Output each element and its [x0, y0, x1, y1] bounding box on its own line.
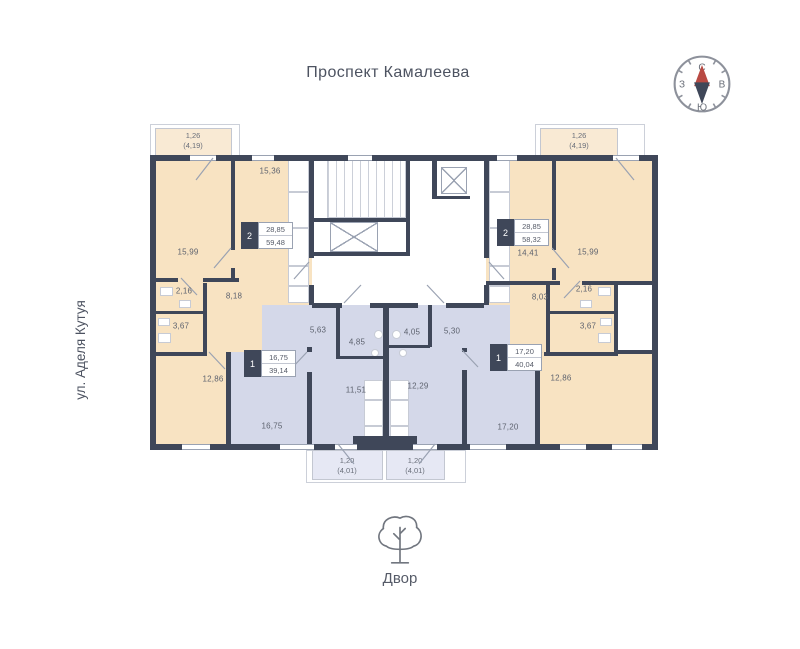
room-area-label: 12,86	[202, 375, 223, 384]
room-area-label: 12,29	[407, 382, 428, 391]
region-shaft-notch	[618, 284, 654, 350]
room-area-label: 16,75	[261, 422, 282, 431]
window	[335, 444, 357, 450]
elevator-shaft	[330, 222, 378, 252]
wall	[484, 285, 489, 305]
wall	[484, 155, 489, 258]
wall	[462, 370, 467, 444]
fixture	[288, 160, 309, 192]
fixture	[489, 160, 510, 192]
apartment-areas: 28,8558,32	[514, 219, 549, 246]
fixture	[489, 286, 510, 303]
apartment-areas: 17,2040,04	[507, 344, 542, 371]
room-area-label: 5,30	[444, 327, 460, 336]
fixture	[179, 300, 191, 308]
window	[280, 444, 314, 450]
apartment-areas: 28,8559,48	[258, 222, 293, 249]
wall	[150, 352, 207, 356]
room-area-label: 11,51	[346, 386, 366, 395]
apartment-rooms-count: 1	[490, 344, 507, 371]
apartment-rooms-count: 2	[241, 222, 258, 249]
wall	[428, 305, 432, 347]
wall	[309, 155, 314, 258]
apartment-rooms-count: 2	[497, 219, 514, 246]
region-apartment-2-left-bottom	[150, 352, 228, 444]
window	[470, 444, 506, 450]
wall	[544, 352, 618, 356]
room-area-label: 15,36	[259, 167, 280, 176]
balcony-area-label: 1,26(4,19)	[569, 131, 589, 151]
wall	[336, 305, 340, 357]
apartment-areas: 16,7539,14	[261, 350, 296, 377]
wall	[312, 252, 410, 256]
balcony-area-label: 1,26(4,19)	[183, 131, 203, 151]
fixture	[288, 266, 309, 286]
elevator-shaft	[441, 167, 467, 194]
room-area-label: 3,67	[580, 322, 596, 331]
wall	[307, 372, 312, 444]
wall	[652, 155, 658, 450]
apartment-badge[interactable]: 228,8558,32	[497, 219, 549, 246]
fixture	[158, 333, 171, 343]
wall	[312, 218, 410, 222]
room-area-label: 12,86	[550, 374, 571, 383]
room-area-label: 4,85	[349, 338, 365, 347]
tree-icon	[374, 514, 426, 568]
balcony-area-label: 1,20(4,01)	[405, 456, 425, 476]
apartment-badge[interactable]: 117,2040,04	[490, 344, 542, 371]
fixture	[364, 380, 383, 400]
window	[182, 444, 210, 450]
room-area-label: 8,18	[226, 292, 242, 301]
room-area-label: 15,99	[177, 248, 198, 257]
wall	[383, 305, 389, 444]
fixture	[390, 400, 409, 426]
room-area-label: 5,63	[310, 326, 326, 335]
courtyard-label: Двор	[340, 570, 460, 587]
wall	[203, 283, 207, 353]
window	[413, 444, 437, 450]
window	[612, 444, 642, 450]
wall	[150, 155, 156, 450]
wall	[370, 303, 418, 308]
fixture	[374, 330, 383, 339]
wall	[552, 268, 556, 280]
window	[560, 444, 586, 450]
wall	[150, 155, 658, 161]
window	[190, 155, 216, 161]
room-area-label: 14,41	[517, 249, 538, 258]
fixture	[390, 380, 409, 400]
wall	[231, 155, 235, 250]
wall	[353, 436, 417, 446]
window	[497, 155, 517, 161]
fixture	[580, 300, 592, 308]
apartment-badge[interactable]: 116,7539,14	[244, 350, 296, 377]
room-area-label: 2,16	[576, 285, 592, 294]
wall	[203, 278, 239, 282]
wall	[150, 278, 178, 282]
wall	[552, 155, 556, 250]
fixture	[399, 349, 407, 357]
fixture	[364, 400, 383, 426]
window	[252, 155, 274, 161]
wall	[462, 348, 467, 352]
wall	[546, 311, 618, 314]
wall	[226, 352, 231, 444]
wall	[614, 283, 618, 353]
apartment-badge[interactable]: 228,8559,48	[241, 222, 293, 249]
apartment-rooms-count: 1	[244, 350, 261, 377]
room-area-label: 2,16	[176, 287, 192, 296]
wall	[150, 311, 207, 314]
fixture	[160, 287, 173, 296]
wall	[406, 155, 410, 255]
wall	[436, 196, 470, 199]
wall	[307, 347, 312, 352]
stairwell	[327, 158, 406, 218]
room-area-label: 3,67	[173, 322, 189, 331]
fixture	[598, 287, 611, 296]
fixture	[600, 318, 612, 326]
room-area-label: 4,05	[404, 328, 420, 337]
room-area-label: 8,03	[532, 293, 548, 302]
room-area-label: 17,20	[497, 423, 518, 432]
fixture	[288, 286, 309, 303]
balcony-area-label: 1,20(4,01)	[337, 456, 357, 476]
wall	[446, 303, 484, 308]
fixture	[158, 318, 170, 326]
window	[348, 155, 372, 161]
wall	[309, 285, 314, 305]
window	[613, 155, 639, 161]
room-area-label: 15,99	[577, 248, 598, 257]
region-apartment-2-right-bottom	[538, 352, 658, 444]
wall	[614, 350, 654, 354]
wall	[432, 161, 437, 199]
wall	[388, 345, 430, 348]
fixture	[392, 330, 401, 339]
wall	[336, 356, 383, 359]
wall	[582, 281, 658, 285]
fixture	[598, 333, 611, 343]
